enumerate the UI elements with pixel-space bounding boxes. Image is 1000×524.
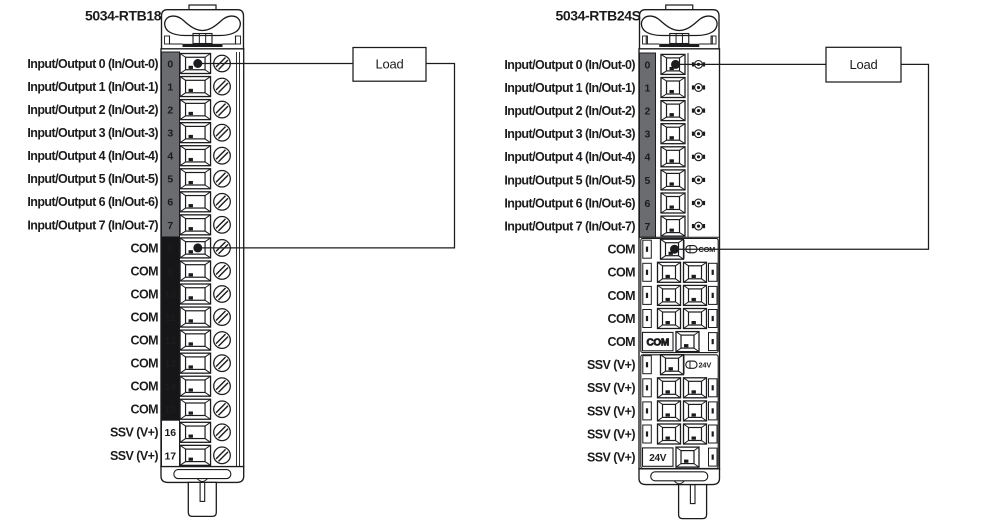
terminal-label: Input/Output 6 (In/Out-6) bbox=[504, 196, 635, 210]
terminal-label: SSV (V+) bbox=[587, 451, 635, 465]
terminal-number: 1 bbox=[167, 81, 173, 93]
socket-clamp-mark bbox=[669, 367, 673, 370]
socket-clamp-mark bbox=[189, 204, 193, 207]
socket-clamp-mark bbox=[189, 296, 193, 299]
left-block-title: 5034-RTB18 bbox=[85, 8, 162, 24]
terminal-number: 6 bbox=[644, 198, 650, 210]
terminal-number: 16 bbox=[164, 427, 176, 439]
terminal-label: SSV (V+) bbox=[110, 449, 158, 463]
right-block-title: 5034-RTB24S bbox=[556, 8, 641, 24]
socket-clamp-mark bbox=[189, 135, 193, 138]
terminal-label: SSV (V+) bbox=[587, 404, 635, 418]
terminal-label: SSV (V+) bbox=[110, 426, 158, 440]
terminal-label: Input/Output 1 (In/Out-1) bbox=[504, 81, 635, 95]
socket-clamp-mark bbox=[189, 227, 193, 230]
terminal-label: Input/Output 2 (In/Out-2) bbox=[27, 103, 158, 117]
socket-clamp-mark bbox=[189, 342, 193, 345]
terminal-number: 4 bbox=[644, 152, 650, 164]
terminal-number: 13 bbox=[164, 358, 176, 370]
terminal-number: 11 bbox=[165, 312, 176, 324]
terminal-label: Input/Output 1 (In/Out-1) bbox=[27, 80, 158, 94]
bus-label: 24V bbox=[649, 453, 667, 464]
terminal-label: COM bbox=[607, 243, 635, 257]
socket-clamp-mark bbox=[189, 66, 193, 69]
socket-clamp-mark bbox=[666, 437, 670, 440]
terminal-label: Input/Output 5 (In/Out-5) bbox=[504, 173, 635, 187]
socket-clamp-mark bbox=[684, 460, 688, 463]
socket-clamp-mark bbox=[692, 413, 696, 416]
terminal-number: 12 bbox=[164, 335, 176, 347]
terminal-label: COM bbox=[130, 357, 158, 371]
terminal-label: COM bbox=[130, 287, 158, 301]
terminal-label: Input/Output 0 (In/Out-0) bbox=[27, 57, 158, 71]
terminal-number: 0 bbox=[644, 59, 650, 71]
socket-clamp-mark bbox=[670, 229, 674, 232]
socket-clamp-mark bbox=[189, 458, 193, 461]
terminal-number: 2 bbox=[644, 106, 650, 118]
socket-clamp-mark bbox=[666, 413, 670, 416]
terminal-label: Input/Output 4 (In/Out-4) bbox=[504, 150, 635, 164]
terminal-label: COM bbox=[130, 334, 158, 348]
socket-clamp-mark bbox=[189, 435, 193, 438]
socket-clamp-mark bbox=[692, 437, 696, 440]
terminal-number: 5 bbox=[167, 174, 173, 186]
socket-clamp-mark bbox=[692, 321, 696, 324]
terminal-label: SSV (V+) bbox=[587, 381, 635, 395]
socket-clamp-mark bbox=[666, 298, 670, 301]
socket-clamp-mark bbox=[670, 159, 674, 162]
terminal-number: 3 bbox=[167, 128, 173, 140]
socket-clamp-mark bbox=[670, 206, 674, 209]
terminal-block-wiring-diagram: Input/Output 0 (In/Out-0)0Input/Output 1… bbox=[0, 0, 1000, 524]
load-box-left-label: Load bbox=[375, 57, 403, 72]
terminal-label: COM bbox=[130, 310, 158, 324]
terminal-label: Input/Output 4 (In/Out-4) bbox=[27, 149, 158, 163]
load-box-right: Load bbox=[826, 47, 901, 82]
rtb-bottom-cap bbox=[161, 467, 244, 483]
terminal-number: 17 bbox=[164, 450, 176, 462]
terminal-label: COM bbox=[607, 266, 635, 280]
socket-clamp-mark bbox=[189, 89, 193, 92]
socket-clamp-mark bbox=[666, 321, 670, 324]
rtb-top-handle bbox=[640, 5, 720, 49]
terminal-label: Input/Output 5 (In/Out-5) bbox=[27, 172, 158, 186]
socket-clamp-mark bbox=[670, 90, 674, 93]
terminal-number: 3 bbox=[644, 129, 650, 141]
din-foot bbox=[188, 482, 216, 516]
socket-clamp-mark bbox=[692, 275, 696, 278]
socket-clamp-mark bbox=[684, 344, 688, 347]
terminal-label: Input/Output 6 (In/Out-6) bbox=[27, 195, 158, 209]
terminal-number: 8 bbox=[167, 243, 173, 255]
terminal-label: COM bbox=[130, 241, 158, 255]
terminal-number: 10 bbox=[164, 289, 176, 301]
socket-clamp-mark bbox=[189, 388, 193, 391]
terminal-label: COM bbox=[607, 312, 635, 326]
socket-clamp-mark bbox=[692, 390, 696, 393]
rtb-bottom-cap bbox=[639, 469, 720, 485]
terminal-label: Input/Output 3 (In/Out-3) bbox=[504, 127, 635, 141]
socket-clamp-mark bbox=[189, 412, 193, 415]
socket-clamp-mark bbox=[666, 275, 670, 278]
socket-clamp-mark bbox=[189, 250, 193, 253]
terminal-label: COM bbox=[130, 264, 158, 278]
terminal-number: 2 bbox=[167, 105, 173, 117]
terminal-label: SSV (V+) bbox=[587, 358, 635, 372]
socket-clamp-mark bbox=[189, 181, 193, 184]
socket-clamp-mark bbox=[692, 298, 696, 301]
terminal-number: 9 bbox=[167, 266, 173, 278]
terminal-label: SSV (V+) bbox=[587, 427, 635, 441]
terminal-label: COM bbox=[130, 380, 158, 394]
terminal-number: 14 bbox=[164, 381, 176, 393]
terminal-number: 6 bbox=[167, 197, 173, 209]
terminal-label: Input/Output 7 (In/Out-7) bbox=[504, 220, 635, 234]
socket-clamp-mark bbox=[670, 182, 674, 185]
socket-clamp-mark bbox=[189, 158, 193, 161]
terminal-number: 5 bbox=[644, 175, 650, 187]
terminal-number: 1 bbox=[644, 82, 650, 94]
bus-label: COM bbox=[646, 337, 668, 348]
terminal-number: 4 bbox=[167, 151, 173, 163]
rtb-top-handle bbox=[162, 5, 244, 49]
terminal-label: Input/Output 7 (In/Out-7) bbox=[27, 218, 158, 232]
wiring-diagram-canvas: Input/Output 0 (In/Out-0)0Input/Output 1… bbox=[0, 0, 1000, 524]
socket-clamp-mark bbox=[189, 273, 193, 276]
socket-clamp-mark bbox=[666, 390, 670, 393]
terminal-label: COM bbox=[607, 289, 635, 303]
socket-clamp-mark bbox=[189, 319, 193, 322]
terminal-label: Input/Output 0 (In/Out-0) bbox=[504, 58, 635, 72]
din-foot bbox=[679, 485, 707, 519]
terminal-number: 15 bbox=[164, 404, 176, 416]
terminal-label: Input/Output 3 (In/Out-3) bbox=[27, 126, 158, 140]
terminal-number: 7 bbox=[644, 221, 650, 233]
terminal-label: Input/Output 2 (In/Out-2) bbox=[504, 104, 635, 118]
socket-clamp-mark bbox=[670, 136, 674, 139]
terminal-label: COM bbox=[607, 335, 635, 349]
terminal-label: COM bbox=[130, 403, 158, 417]
bus-label: 24V bbox=[699, 361, 712, 370]
load-box-right-label: Load bbox=[849, 57, 877, 72]
socket-clamp-mark bbox=[670, 113, 674, 116]
terminal-number: 0 bbox=[167, 58, 173, 70]
load-box-left: Load bbox=[353, 48, 426, 82]
terminal-number: 7 bbox=[167, 220, 173, 232]
socket-clamp-mark bbox=[189, 365, 193, 368]
socket-clamp-mark bbox=[189, 112, 193, 115]
